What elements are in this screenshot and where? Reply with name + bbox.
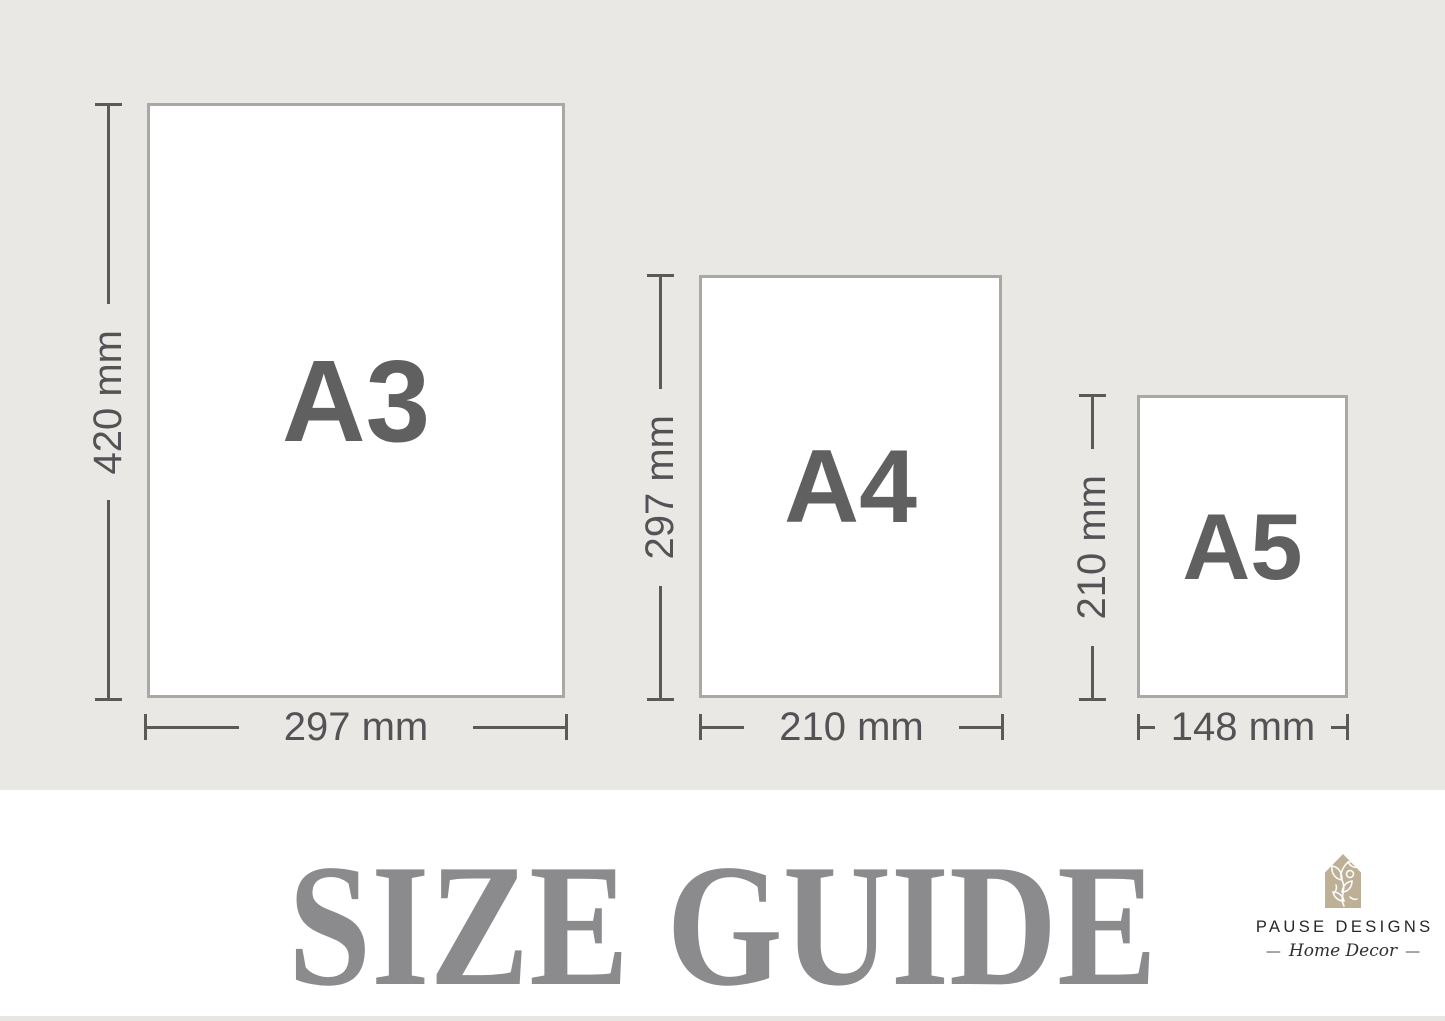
brand-tagline: — Home Decor — [1247, 941, 1439, 961]
dimension-tick [1346, 714, 1349, 740]
height-value-a5: 210 mm [1070, 475, 1115, 620]
dimension-line [107, 500, 110, 698]
dimension-line [1331, 726, 1346, 729]
height-dimension-a3: 420 mm [94, 103, 122, 701]
house-botanical-icon [1323, 852, 1363, 910]
dimension-line [659, 586, 662, 698]
height-value-a3: 420 mm [86, 330, 131, 475]
paper-sheet-a3: A3 [147, 103, 565, 698]
height-dimension-a4: 297 mm [646, 274, 674, 701]
size-guide-page: A3 420 mm 297 mm A4 297 mm 210 mm A5 [0, 0, 1445, 1021]
brand-logo: PAUSE DESIGNS — Home Decor — [1247, 852, 1439, 961]
dimension-line [147, 726, 239, 729]
dimension-line [1140, 726, 1155, 729]
dimension-line [473, 726, 565, 729]
width-dimension-a4: 210 mm [699, 705, 1004, 749]
paper-size-label-a4: A4 [784, 435, 917, 539]
paper-size-label-a3: A3 [282, 343, 430, 459]
height-value-a4: 297 mm [638, 415, 683, 560]
tagline-right-dash: — [1405, 944, 1420, 959]
dimension-line [959, 726, 1001, 729]
width-dimension-a5: 148 mm [1137, 705, 1349, 749]
dimension-line [107, 106, 110, 304]
dimension-line [659, 277, 662, 389]
tagline-left-dash: — [1266, 944, 1281, 959]
dimension-tick [1001, 714, 1004, 740]
height-dimension-a5: 210 mm [1078, 394, 1106, 701]
width-value-a3: 297 mm [284, 705, 429, 750]
dimension-tick [95, 698, 122, 701]
paper-size-label-a5: A5 [1182, 500, 1302, 594]
page-title: SIZE GUIDE [288, 838, 1157, 1013]
width-value-a4: 210 mm [779, 705, 924, 750]
dimension-line [1091, 397, 1094, 449]
paper-sheet-a4: A4 [699, 275, 1002, 698]
dimension-line [1091, 646, 1094, 698]
brand-name: PAUSE DESIGNS [1247, 918, 1439, 937]
width-dimension-a3: 297 mm [144, 705, 568, 749]
dimension-tick [1079, 698, 1106, 701]
width-value-a5: 148 mm [1171, 705, 1316, 750]
dimension-line [702, 726, 744, 729]
dimension-tick [565, 714, 568, 740]
tagline-text: Home Decor [1289, 941, 1397, 961]
paper-sheet-a5: A5 [1137, 395, 1348, 698]
dimension-tick [647, 698, 674, 701]
